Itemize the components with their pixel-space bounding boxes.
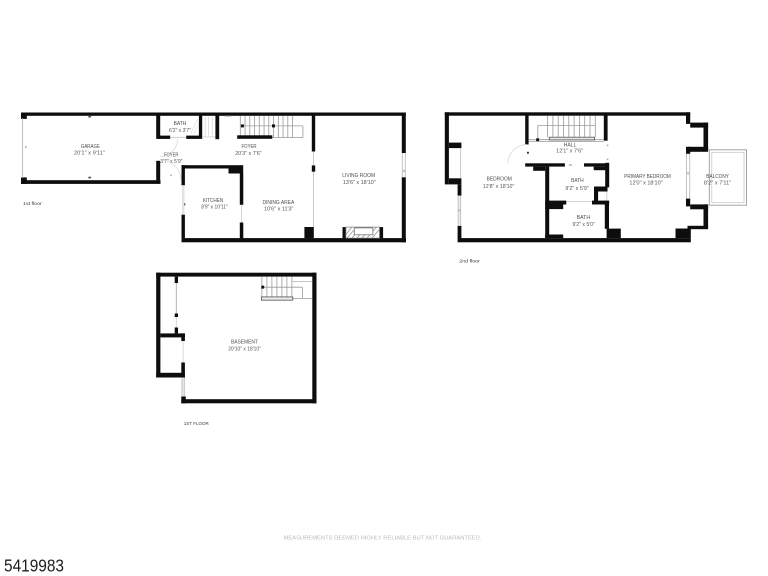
svg-text:13'6" x 18'10": 13'6" x 18'10" [343,180,376,186]
svg-text:12'1" x 7'6": 12'1" x 7'6" [556,148,583,154]
svg-text:3'7" x 5'9": 3'7" x 5'9" [160,159,182,165]
svg-text:12'0" x 18'10": 12'0" x 18'10" [629,181,662,187]
svg-text:DINING AREA: DINING AREA [262,200,294,206]
svg-text:20'10" x 18'10": 20'10" x 18'10" [228,346,261,352]
svg-text:20'1" x 9'11": 20'1" x 9'11" [74,151,105,157]
svg-text:6'2" x 3'7": 6'2" x 3'7" [169,128,191,134]
svg-text:FOYER: FOYER [164,153,178,159]
svg-text:2nd floor: 2nd floor [459,258,480,264]
svg-text:PRIMARY BEDROOM: PRIMARY BEDROOM [624,174,671,180]
svg-text:GARAGE: GARAGE [81,144,100,150]
svg-text:MEASUREMENTS DEEMED HIGHLY REL: MEASUREMENTS DEEMED HIGHLY RELIABLE BUT … [284,536,482,542]
svg-text:9'2" x 5'9": 9'2" x 5'9" [565,186,588,192]
svg-text:BATH: BATH [571,178,584,184]
svg-text:KITCHEN: KITCHEN [203,198,223,204]
svg-text:1st floor: 1st floor [23,201,42,207]
svg-text:12'8" x 18'10": 12'8" x 18'10" [483,184,515,190]
svg-text:8'2" x 7'11": 8'2" x 7'11" [704,180,731,186]
svg-text:10'6" x 11'3": 10'6" x 11'3" [264,207,294,213]
svg-text:BATH: BATH [174,121,187,127]
svg-text:BATH: BATH [577,215,591,221]
svg-text:20'3" x 7'6": 20'3" x 7'6" [235,151,261,157]
svg-text:BASEMENT: BASEMENT [231,340,258,346]
svg-text:FOYER: FOYER [242,144,257,150]
svg-text:BEDROOM: BEDROOM [487,176,512,182]
svg-text:8'9" x 10'11": 8'9" x 10'11" [201,205,228,211]
svg-text:LIVING ROOM: LIVING ROOM [342,173,375,179]
svg-text:9'2" x 5'0": 9'2" x 5'0" [573,222,595,228]
svg-text:1ST FLOOR: 1ST FLOOR [184,421,209,427]
svg-text:5419983: 5419983 [4,556,64,576]
svg-text:BALCONY: BALCONY [706,174,729,180]
